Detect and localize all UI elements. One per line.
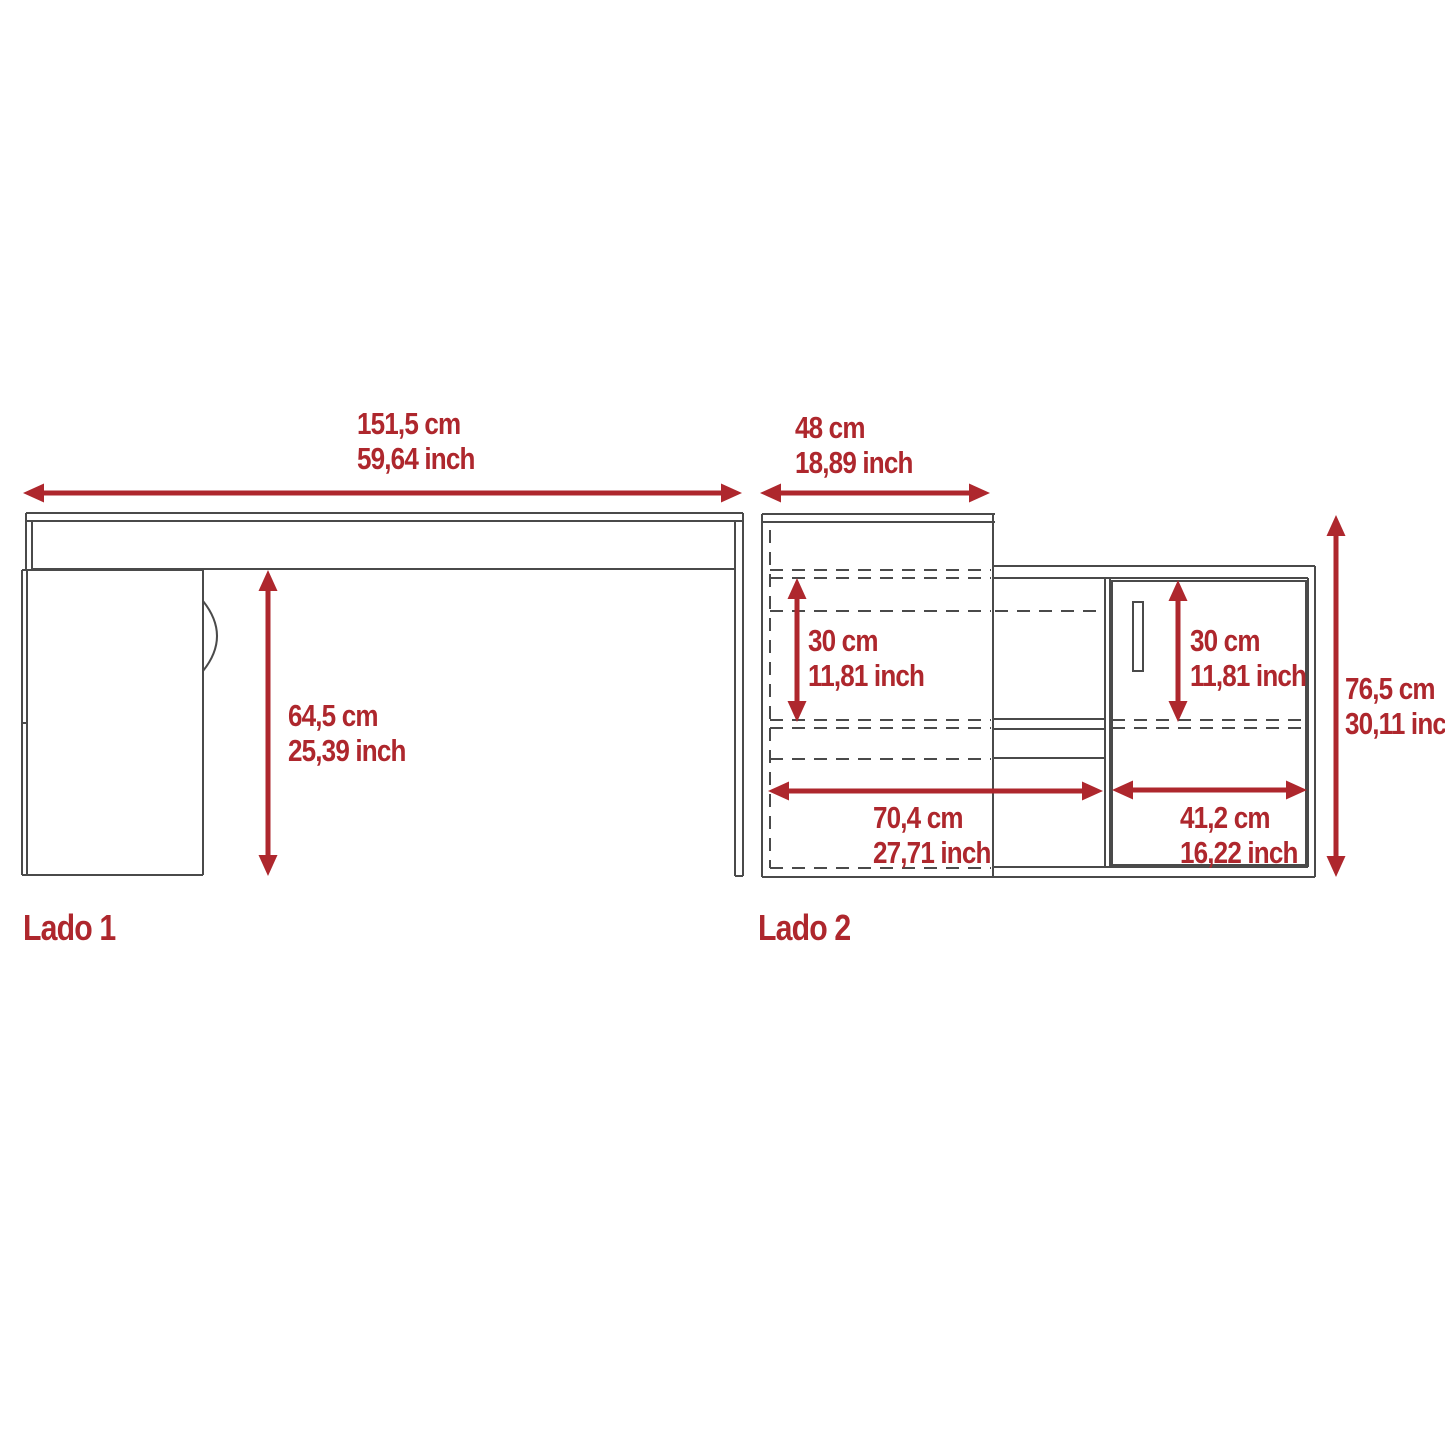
dimension-inch: 11,81 inch bbox=[1190, 658, 1306, 693]
dimension-cm: 76,5 cm bbox=[1345, 671, 1445, 706]
dimension-diagram: 151,5 cm 59,64 inch 64,5 cm 25,39 inch 4… bbox=[0, 0, 1445, 1445]
dimension-cm: 30 cm bbox=[808, 623, 924, 658]
door-width-arrow bbox=[1112, 781, 1307, 800]
desk-cabinet-outline bbox=[22, 570, 203, 875]
dimension-cm: 41,2 cm bbox=[1180, 800, 1298, 835]
dimension-cm: 151,5 cm bbox=[357, 406, 475, 441]
dimension-inch: 11,81 inch bbox=[808, 658, 924, 693]
dimension-label-height-lado1: 64,5 cm 25,39 inch bbox=[288, 698, 406, 768]
dimension-inch: 25,39 inch bbox=[288, 733, 406, 768]
dimension-inch: 27,71 inch bbox=[873, 835, 991, 870]
desk-top-outline bbox=[26, 513, 743, 570]
dimension-label-top-width-lado2: 48 cm 18,89 inch bbox=[795, 410, 913, 480]
dimension-label-total-height: 76,5 cm 30,11 inch bbox=[1345, 671, 1445, 741]
cabinet-door-swing-arc bbox=[203, 601, 217, 671]
dimension-label-door-clearance: 30 cm 11,81 inch bbox=[1190, 623, 1306, 693]
desk-right-leg bbox=[735, 513, 743, 876]
view-label-lado1: Lado 1 bbox=[23, 908, 115, 948]
dimension-label-width-lado1: 151,5 cm 59,64 inch bbox=[357, 406, 475, 476]
dimension-inch: 16,22 inch bbox=[1180, 835, 1298, 870]
dimension-cm: 70,4 cm bbox=[873, 800, 991, 835]
middle-shelves bbox=[993, 578, 1110, 867]
dimension-cm: 30 cm bbox=[1190, 623, 1306, 658]
view-label-lado2: Lado 2 bbox=[758, 908, 850, 948]
total-height-arrow bbox=[1327, 515, 1346, 877]
dimension-label-left-width: 70,4 cm 27,71 inch bbox=[873, 800, 991, 870]
dimension-cm: 64,5 cm bbox=[288, 698, 406, 733]
dimension-cm: 48 cm bbox=[795, 410, 913, 445]
left-width-arrow bbox=[768, 782, 1103, 801]
height-arrow-lado1 bbox=[259, 570, 278, 876]
dimension-inch: 18,89 inch bbox=[795, 445, 913, 480]
dimension-inch: 30,11 inch bbox=[1345, 706, 1445, 741]
top-width-arrow-lado2 bbox=[760, 484, 990, 503]
left-clearance-arrow bbox=[788, 578, 807, 722]
width-arrow-lado1 bbox=[23, 484, 742, 503]
door-handle bbox=[1133, 602, 1143, 671]
diagram-canvas bbox=[0, 0, 1445, 1445]
dimension-arrows bbox=[23, 484, 1346, 878]
door-clearance-arrow bbox=[1169, 580, 1188, 722]
dimension-label-left-clearance: 30 cm 11,81 inch bbox=[808, 623, 924, 693]
dimension-inch: 59,64 inch bbox=[357, 441, 475, 476]
lado1-drawing bbox=[22, 513, 743, 876]
dimension-label-door-width: 41,2 cm 16,22 inch bbox=[1180, 800, 1298, 870]
